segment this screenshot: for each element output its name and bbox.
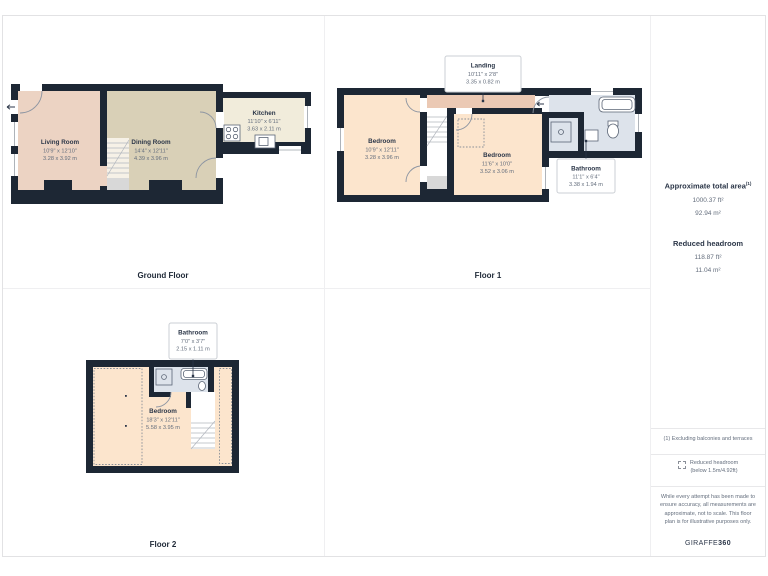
summary-sidebar: Approximate total area(1) 1000.37 ft² 92… [651, 16, 765, 556]
svg-text:4.39 x 3.96 m: 4.39 x 3.96 m [134, 156, 168, 162]
toilet-icon [199, 382, 206, 391]
floor-label-1: Floor 1 [475, 271, 502, 280]
measure-dot [125, 425, 127, 427]
bath-wall [149, 367, 154, 394]
brand-bold: 360 [718, 540, 731, 547]
room-label-bedroom: Bedroom 18'3" x 12'11" 5.58 x 3.95 m [146, 408, 180, 431]
room-label-dining-room: Dining Room 14'4" x 12'11" 4.39 x 3.96 m [131, 139, 171, 162]
svg-text:18'3" x 12'11": 18'3" x 12'11" [146, 418, 179, 424]
stairs [107, 138, 129, 190]
bedroom2-door-gap [456, 108, 472, 114]
divider [651, 454, 765, 455]
brand-logo: GIRAFFE360 [651, 540, 765, 547]
total-area-block: Approximate total area(1) 1000.37 ft² 92… [651, 181, 765, 274]
bath-wall [149, 392, 171, 397]
svg-text:10'11" x 2'8": 10'11" x 2'8" [468, 72, 498, 78]
svg-text:3.63 x 2.11 m: 3.63 x 2.11 m [247, 127, 281, 133]
bathtub-icon [599, 97, 635, 112]
total-area-m: 92.94 m² [651, 210, 765, 217]
wall-bump [149, 180, 182, 190]
ground-floor-plan: Living Room 10'9" x 12'10" 3.28 x 3.92 m… [3, 16, 324, 288]
svg-text:3.28 x 3.92 m: 3.28 x 3.92 m [43, 156, 77, 162]
svg-text:3.28 x 3.96 m: 3.28 x 3.96 m [365, 155, 399, 161]
wall-bump [44, 180, 72, 190]
floor-2-plan: Bathroom 7'0" x 3'7" 2.15 x 1.11 m Bedro… [3, 289, 324, 556]
stair-wall [447, 108, 454, 176]
footnote: (1) Excluding balconies and terraces [655, 436, 761, 442]
front-door-gap [20, 84, 42, 91]
legend-line1: Reduced headroom [690, 460, 738, 466]
sink-icon [585, 130, 598, 141]
svg-text:7'0" x 3'7": 7'0" x 3'7" [181, 339, 205, 345]
disclaimer: While every attempt has been made to ens… [659, 493, 757, 526]
divider [651, 486, 765, 487]
svg-text:Bedroom: Bedroom [483, 152, 511, 159]
total-area-ft: 1000.37 ft² [651, 197, 765, 204]
room-label-living-room: Living Room 10'9" x 12'10" 3.28 x 3.92 m [41, 139, 80, 162]
svg-text:11'1" x 6'4": 11'1" x 6'4" [572, 175, 599, 181]
kitchen-door-gap [216, 112, 224, 128]
stair-wall [186, 392, 191, 408]
bedroom1-door-gap [420, 98, 427, 112]
svg-text:Dining Room: Dining Room [131, 139, 171, 146]
svg-text:Bedroom: Bedroom [149, 408, 177, 415]
stairs [191, 392, 215, 449]
room-label-bedroom1: Bedroom 10'9" x 12'11" 3.28 x 3.96 m [365, 138, 399, 161]
svg-text:Bedroom: Bedroom [368, 138, 396, 145]
svg-text:11'6" x 10'0": 11'6" x 10'0" [482, 162, 512, 168]
brand-normal: GIRAFFE [685, 540, 718, 547]
bath-wall [208, 367, 214, 395]
panel-ground-floor: Living Room 10'9" x 12'10" 3.28 x 3.92 m… [3, 16, 325, 289]
panel-floor-1: Landing 10'11" x 2'8" 3.35 x 0.82 m Bath… [325, 16, 651, 289]
reduced-headroom-m: 11.04 m² [651, 267, 765, 274]
svg-text:10'9" x 12'10": 10'9" x 12'10" [43, 149, 77, 155]
checkbox-icon [678, 461, 686, 469]
bedroom1-door-gap2 [420, 166, 427, 182]
measure-dot [125, 395, 127, 397]
svg-text:3.38 x 1.94 m: 3.38 x 1.94 m [569, 182, 603, 188]
svg-text:Bathroom: Bathroom [178, 330, 208, 337]
svg-text:5.58 x 3.95 m: 5.58 x 3.95 m [146, 425, 180, 431]
legend-line2: (below 1.5m/4.92ft) [690, 468, 737, 474]
reduced-headroom-legend: Reduced headroom (below 1.5m/4.92ft) [651, 460, 765, 476]
landing-area [427, 95, 535, 108]
panel-floor-2: Bathroom 7'0" x 3'7" 2.15 x 1.11 m Bedro… [3, 289, 325, 556]
svg-text:Living Room: Living Room [41, 139, 80, 146]
total-area-title: Approximate total area(1) [651, 181, 765, 191]
svg-text:Bathroom: Bathroom [571, 166, 601, 173]
floor-label-2: Floor 2 [150, 540, 177, 549]
footnote-marker: (1) [746, 181, 752, 186]
svg-text:14'4" x 12'11": 14'4" x 12'11" [134, 149, 167, 155]
stove-icon [224, 125, 240, 141]
bedroom1-area [344, 95, 420, 195]
floor-label-ground: Ground Floor [137, 271, 188, 280]
svg-text:3.35 x 0.82 m: 3.35 x 0.82 m [466, 80, 500, 86]
room-label-bedroom2: Bedroom 11'6" x 10'0" 3.52 x 3.06 m [480, 152, 514, 175]
bathtub-icon [181, 369, 207, 380]
toilet-icon [608, 121, 619, 138]
reduced-headroom-title: Reduced headroom [651, 239, 765, 248]
dining-door-gap [216, 158, 223, 178]
reduced-headroom-ft: 118.87 ft² [651, 254, 765, 261]
living-dining-opening [100, 166, 107, 186]
svg-text:10'9" x 12'11": 10'9" x 12'11" [365, 148, 398, 154]
svg-text:Kitchen: Kitchen [252, 110, 275, 117]
svg-text:Landing: Landing [471, 63, 496, 70]
svg-text:2.15 x 1.11 m: 2.15 x 1.11 m [176, 347, 210, 353]
svg-text:11'10" x 6'11": 11'10" x 6'11" [248, 119, 281, 125]
bath-inner-wall [578, 112, 584, 151]
divider [651, 428, 765, 429]
floorplan-canvas: Living Room 10'9" x 12'10" 3.28 x 3.92 m… [2, 15, 766, 557]
sink-icon [255, 135, 275, 148]
stairs [427, 108, 447, 189]
floor-1-plan: Landing 10'11" x 2'8" 3.35 x 0.82 m Bath… [325, 16, 650, 288]
panel-empty [325, 289, 651, 556]
svg-text:3.52 x 3.06 m: 3.52 x 3.06 m [480, 169, 514, 175]
